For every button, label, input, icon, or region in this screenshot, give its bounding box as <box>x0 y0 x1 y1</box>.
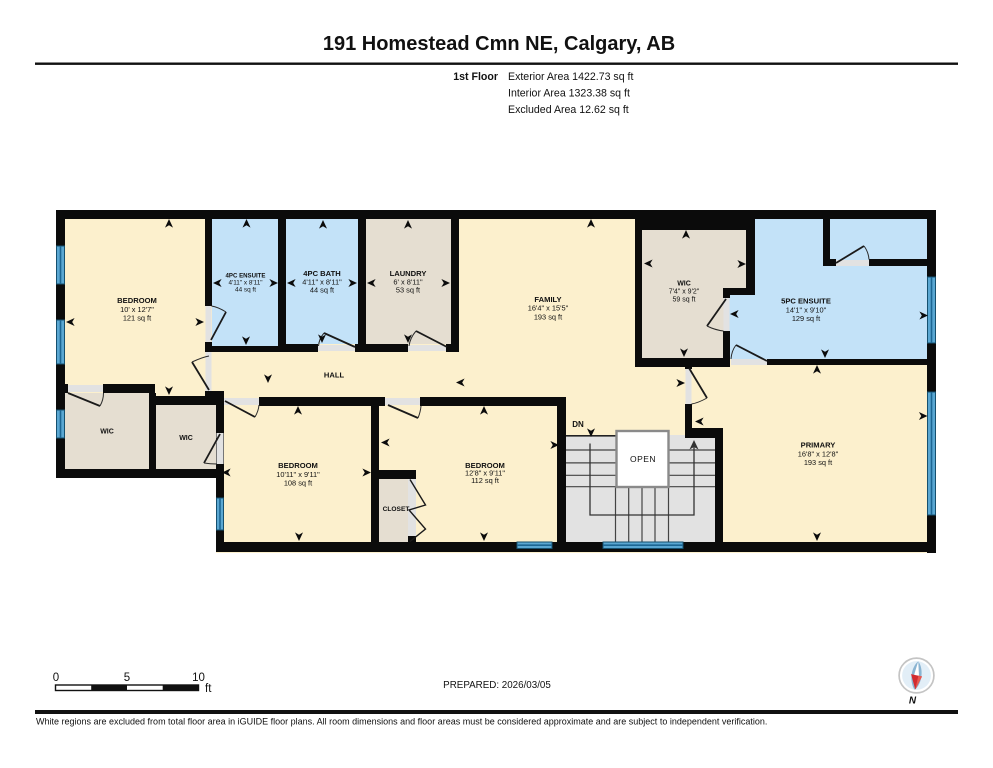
svg-text:7'4" x 9'2": 7'4" x 9'2" <box>669 289 700 296</box>
svg-text:BEDROOM: BEDROOM <box>278 461 318 470</box>
svg-text:DN: DN <box>572 420 584 429</box>
svg-text:Interior Area 1323.38 sq ft: Interior Area 1323.38 sq ft <box>508 88 630 100</box>
svg-text:ft: ft <box>205 683 212 695</box>
svg-text:CLOSET: CLOSET <box>383 506 410 513</box>
svg-text:193 sq ft: 193 sq ft <box>804 458 832 467</box>
svg-text:108 sq ft: 108 sq ft <box>284 479 312 488</box>
svg-text:4PC ENSUITE: 4PC ENSUITE <box>226 273 266 280</box>
svg-text:1st Floor: 1st Floor <box>453 71 498 83</box>
svg-text:BEDROOM: BEDROOM <box>117 296 157 305</box>
svg-text:193 sq ft: 193 sq ft <box>534 313 562 322</box>
svg-text:191 Homestead Cmn NE, Calgary,: 191 Homestead Cmn NE, Calgary, AB <box>323 33 675 55</box>
svg-text:129 sq ft: 129 sq ft <box>792 314 820 323</box>
svg-text:59 sq ft: 59 sq ft <box>673 297 696 304</box>
svg-text:44 sq ft: 44 sq ft <box>235 287 256 294</box>
svg-text:PRIMARY: PRIMARY <box>801 441 836 450</box>
svg-text:53 sq ft: 53 sq ft <box>396 286 420 295</box>
svg-text:PREPARED: 2026/03/05: PREPARED: 2026/03/05 <box>443 680 551 691</box>
svg-text:112 sq ft: 112 sq ft <box>471 476 499 485</box>
svg-text:HALL: HALL <box>324 371 345 380</box>
svg-text:Exterior Area 1422.73 sq ft: Exterior Area 1422.73 sq ft <box>508 71 633 83</box>
svg-text:N: N <box>909 696 917 707</box>
svg-text:4'11" x 8'11": 4'11" x 8'11" <box>228 280 262 287</box>
svg-text:121 sq ft: 121 sq ft <box>123 314 151 323</box>
svg-text:White regions are excluded fro: White regions are excluded from total fl… <box>36 717 767 727</box>
svg-text:OPEN: OPEN <box>630 454 656 464</box>
svg-text:Excluded Area 12.62 sq ft: Excluded Area 12.62 sq ft <box>508 104 629 116</box>
svg-text:16'4" x 15'5": 16'4" x 15'5" <box>528 304 569 313</box>
svg-text:5PC ENSUITE: 5PC ENSUITE <box>781 297 831 306</box>
svg-text:WIC: WIC <box>179 435 193 442</box>
svg-text:10: 10 <box>192 672 205 684</box>
svg-text:5: 5 <box>124 672 130 684</box>
svg-text:WIC: WIC <box>677 281 691 288</box>
svg-text:44 sq ft: 44 sq ft <box>310 286 334 295</box>
svg-text:WIC: WIC <box>100 429 114 436</box>
svg-text:0: 0 <box>53 672 59 684</box>
